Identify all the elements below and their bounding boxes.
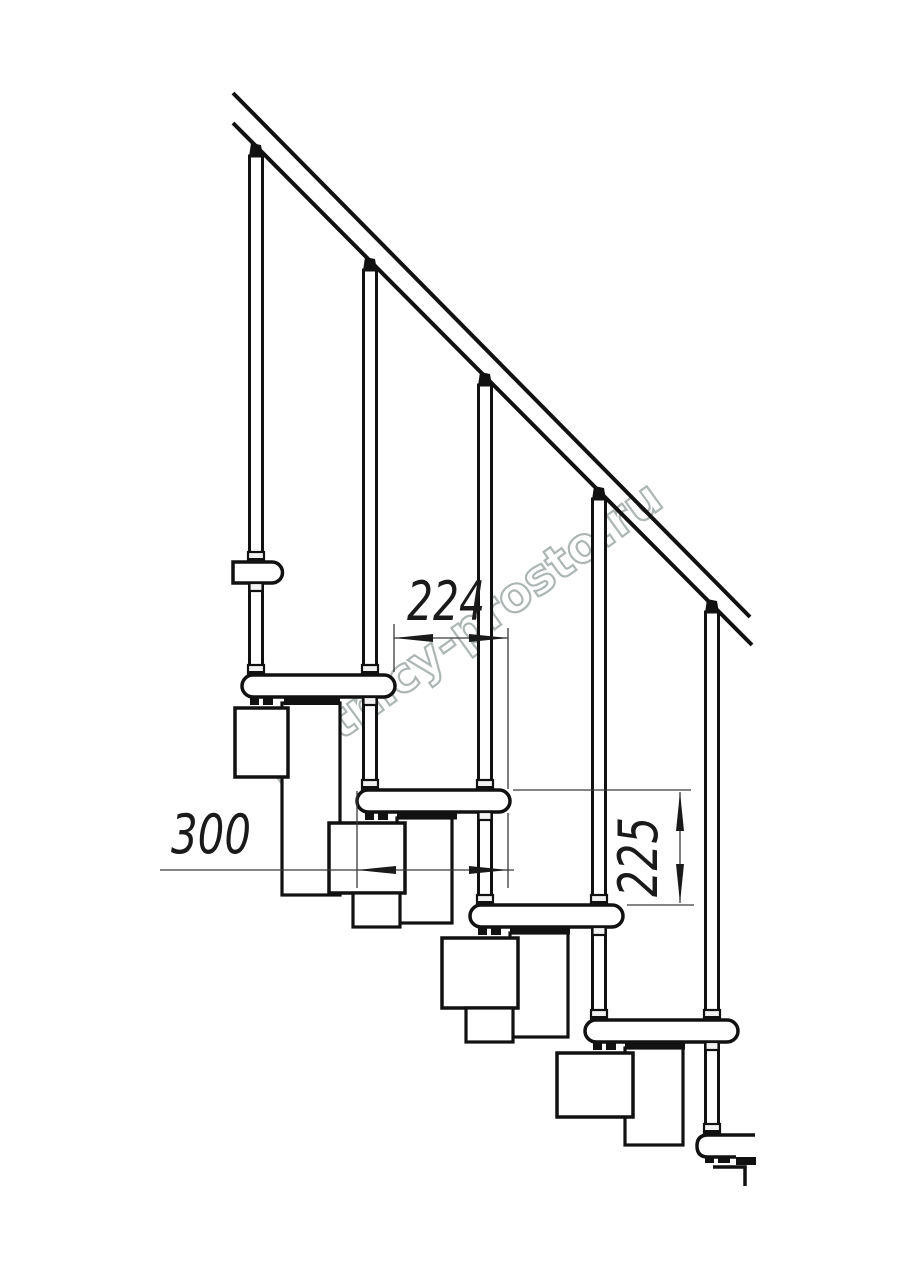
module-f-partial-outline xyxy=(713,1167,745,1186)
tread-e xyxy=(585,1020,738,1042)
baluster-3 xyxy=(479,385,492,905)
collar-base xyxy=(248,671,265,676)
tab xyxy=(263,697,273,705)
bar xyxy=(510,928,570,935)
tab xyxy=(606,1042,616,1050)
tread-landing-stub xyxy=(233,562,283,583)
collar-base xyxy=(362,671,379,676)
baluster-4 xyxy=(593,499,606,1020)
baluster-2 xyxy=(364,270,377,790)
collar-base xyxy=(704,1016,721,1021)
tread-d xyxy=(470,905,623,927)
collar-base xyxy=(362,786,379,791)
baluster-1 xyxy=(250,156,263,675)
arrowhead-up xyxy=(676,792,684,831)
collar-below xyxy=(364,697,377,705)
bar xyxy=(625,1043,685,1050)
collar-base xyxy=(591,1016,608,1021)
tab xyxy=(378,812,388,820)
module-c-square-block xyxy=(329,823,405,893)
dimension-label-tread-overlap: 224 xyxy=(407,570,485,633)
collar-base xyxy=(477,786,494,791)
tread-f-clipped xyxy=(697,1135,755,1157)
staircase-technical-drawing-page: lestnicy-prosto.ru xyxy=(0,0,914,1280)
tab xyxy=(478,927,487,935)
collar-below xyxy=(479,812,492,820)
dimension-label-tread-depth: 300 xyxy=(171,803,251,866)
baluster-5 xyxy=(706,612,719,1134)
bar xyxy=(397,813,457,820)
module-c-connector-box xyxy=(353,893,400,927)
bar xyxy=(284,698,340,705)
module-b-square-block xyxy=(235,708,288,777)
collar-base xyxy=(591,901,608,906)
staircase-side-elevation-drawing: lestnicy-prosto.ru xyxy=(0,0,914,1280)
tab xyxy=(705,1156,714,1163)
module-d-square-block xyxy=(442,938,518,1008)
tab xyxy=(491,927,501,935)
tread-b xyxy=(242,675,395,697)
collar-below xyxy=(706,1042,719,1050)
tab xyxy=(593,1042,602,1050)
tab xyxy=(718,1156,730,1163)
collar-base xyxy=(704,1130,721,1135)
collar-below xyxy=(250,583,263,591)
dimension-label-riser-height: 225 xyxy=(607,817,670,897)
collar-base xyxy=(248,558,265,563)
collar-base xyxy=(477,901,494,906)
bar xyxy=(736,1157,756,1165)
tread-c xyxy=(357,790,510,812)
module-d-connector-box xyxy=(466,1008,513,1042)
module-e-square-block xyxy=(557,1053,633,1117)
arrowhead-down xyxy=(676,864,684,903)
tab xyxy=(250,697,259,705)
tab xyxy=(365,812,374,820)
collar-below xyxy=(593,927,606,935)
